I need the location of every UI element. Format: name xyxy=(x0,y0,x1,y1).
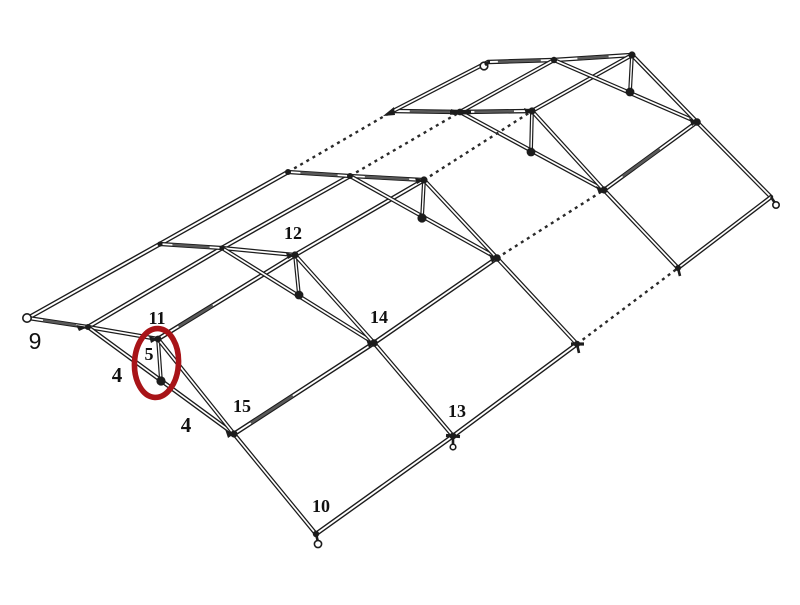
svg-text:15: 15 xyxy=(233,396,251,416)
svg-text:5: 5 xyxy=(145,344,154,364)
svg-text:10: 10 xyxy=(312,496,330,516)
svg-text:12: 12 xyxy=(284,223,302,243)
svg-text:4: 4 xyxy=(112,363,123,387)
svg-text:14: 14 xyxy=(370,307,388,327)
svg-text:4: 4 xyxy=(181,413,192,437)
svg-text:11: 11 xyxy=(148,308,165,328)
svg-text:13: 13 xyxy=(448,401,466,421)
svg-text:9: 9 xyxy=(29,328,42,354)
